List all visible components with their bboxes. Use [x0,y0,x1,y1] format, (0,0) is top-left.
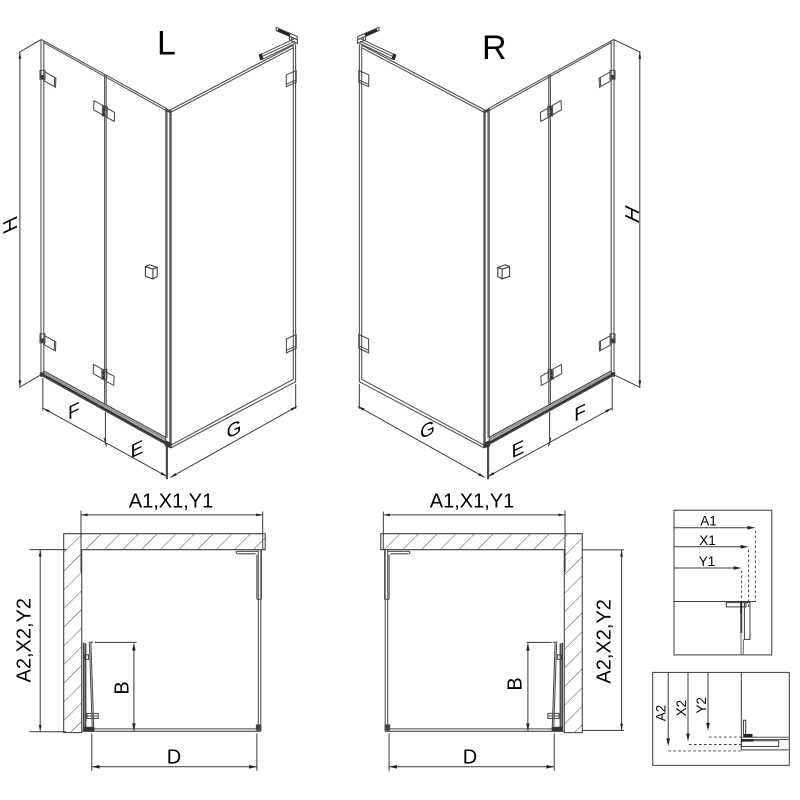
svg-text:A1: A1 [700,514,717,529]
svg-text:A2: A2 [654,705,669,722]
svg-text:B: B [505,677,527,690]
svg-text:L: L [157,25,176,63]
svg-text:B: B [111,681,133,694]
svg-text:A1,X1,Y1: A1,X1,Y1 [129,491,214,513]
svg-text:D: D [463,747,477,769]
svg-text:A2,X2,Y2: A2,X2,Y2 [594,599,616,684]
svg-text:X1: X1 [699,533,716,548]
svg-text:Y1: Y1 [699,554,716,569]
svg-text:X2: X2 [674,700,689,717]
svg-text:A1,X1,Y1: A1,X1,Y1 [430,491,515,513]
svg-text:A2,X2,Y2: A2,X2,Y2 [13,598,35,683]
svg-text:Y2: Y2 [694,697,709,714]
svg-text:D: D [167,747,181,769]
svg-text:R: R [482,29,507,67]
